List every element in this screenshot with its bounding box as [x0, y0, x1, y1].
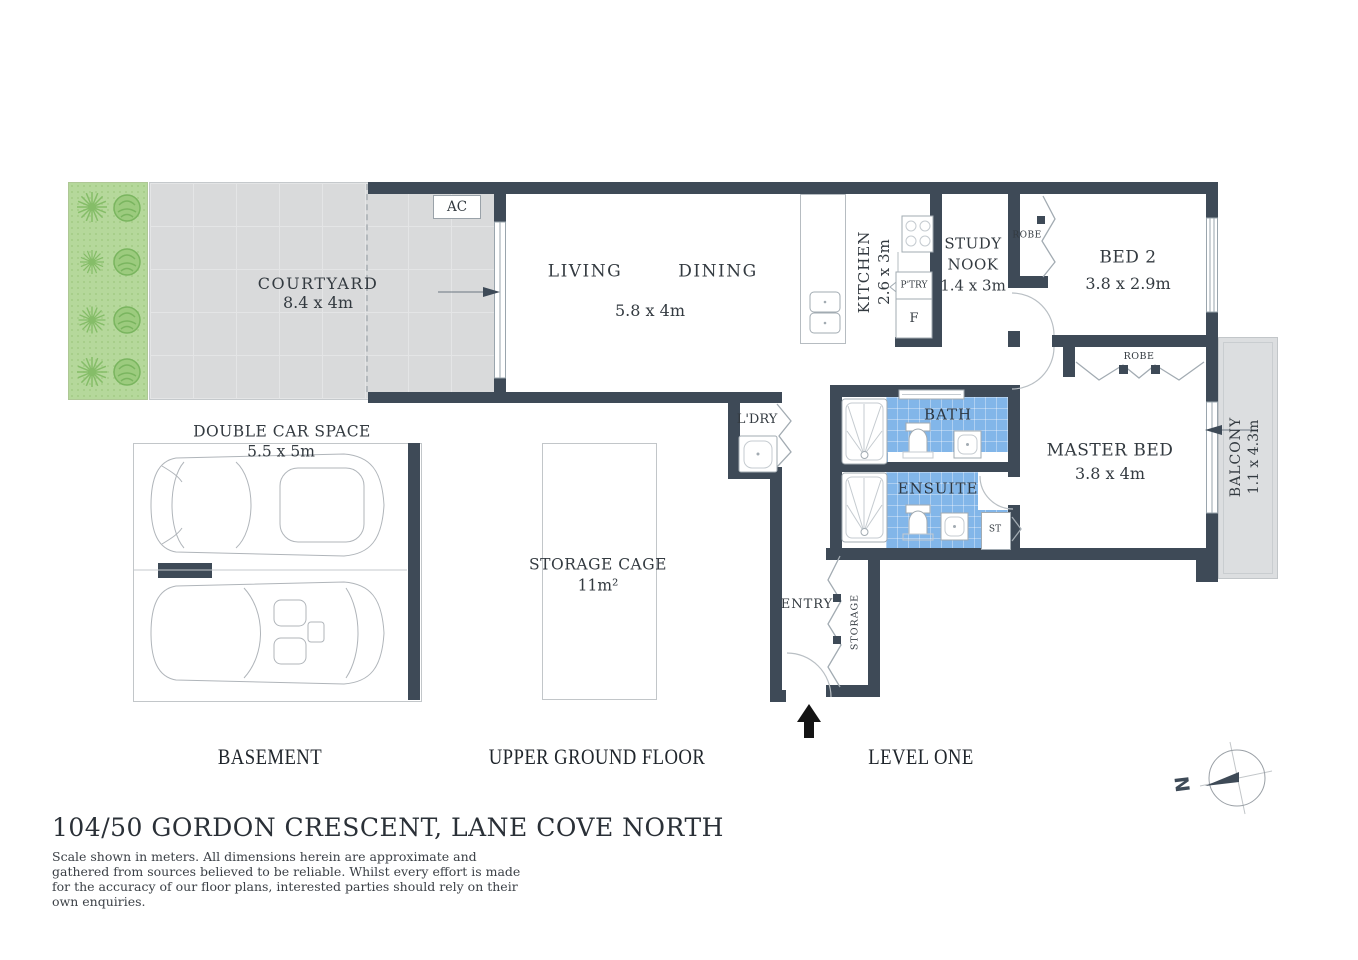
- wall-bed2-bottom: [1052, 335, 1218, 347]
- wall-bed2-right-top: [1206, 182, 1218, 220]
- wall-master-left-upper: [1008, 385, 1020, 477]
- courtyard-label: COURTYARD: [258, 274, 379, 294]
- pantry-label: P'TRY: [901, 280, 928, 291]
- bath-label: BATH: [924, 406, 972, 425]
- door-arc-master: [1012, 347, 1054, 389]
- master-bed-dims: 3.8 x 4m: [1075, 464, 1145, 484]
- robe-master-stub-2: [1151, 365, 1160, 374]
- bath-vanity-counter: [888, 452, 1008, 462]
- balcony-label: BALCONY: [1228, 417, 1244, 497]
- wall-bath-left: [830, 385, 842, 560]
- compass-icon: [1200, 742, 1272, 814]
- floor-label-upper-ground: UPPER GROUND FLOOR: [489, 744, 706, 770]
- page-title: 104/50 GORDON CRESCENT, LANE COVE NORTH: [52, 813, 724, 842]
- wall-storage-right: [868, 548, 880, 697]
- wall-kitchen-right: [930, 194, 942, 347]
- compass-needle: [1205, 772, 1239, 786]
- st-closet-label: ST: [989, 524, 1001, 535]
- wall-basement-divider-block: [158, 563, 212, 578]
- wall-robe-master-stub: [1063, 347, 1075, 377]
- balcony-dims: 1.1 x 4.3m: [1246, 417, 1262, 497]
- wall-entry-left: [770, 479, 782, 702]
- wall-living-left-top: [494, 194, 506, 224]
- courtyard-garden-strip: [68, 182, 148, 400]
- wall-laundry-bottom: [728, 467, 782, 479]
- disclaimer-text: Scale shown in meters. All dimensions he…: [52, 849, 530, 909]
- bifold-door-robe-bed2: [1042, 196, 1055, 277]
- ensuite-label: ENSUITE: [898, 480, 979, 499]
- courtyard-dims: 8.4 x 4m: [283, 293, 353, 313]
- kitchen-island-bench: [800, 194, 846, 344]
- robe-bed2-door-stub: [1037, 216, 1045, 224]
- kitchen-label-block: KITCHEN 2.6 x 3m: [855, 231, 893, 314]
- window-bed2-right: [1207, 218, 1218, 312]
- balcony-label-block: BALCONY 1.1 x 4.3m: [1228, 417, 1262, 497]
- storage-door-stub-2: [833, 636, 841, 644]
- wall-bath-ensuite-divider: [840, 462, 1012, 472]
- storage-door-stub-1: [833, 594, 841, 602]
- bifold-door-storage: [828, 556, 841, 687]
- master-bed-label: MASTER BED: [1047, 440, 1174, 461]
- bifold-door-robe-master: [1076, 362, 1204, 380]
- study-nook-dims: 1.4 x 3m: [940, 277, 1006, 296]
- wall-robe-bed2-bottom: [1008, 276, 1048, 288]
- study-nook-label-1: STUDY: [944, 235, 1001, 254]
- storage-label: STORAGE: [850, 594, 861, 650]
- wall-kitchen-bottom: [895, 337, 942, 347]
- bifold-door-laundry: [777, 404, 791, 467]
- entry-arrow-stem: [804, 721, 814, 738]
- ac-unit-label: AC: [433, 195, 481, 219]
- study-nook-label-2: NOOK: [948, 256, 999, 275]
- compass-north-label: N: [1171, 775, 1197, 794]
- wall-entry-bottom-left: [770, 690, 786, 702]
- storage-cage-dims: 11m²: [578, 576, 619, 595]
- wall-laundry-left: [728, 392, 740, 479]
- floor-label-basement: BASEMENT: [218, 744, 322, 770]
- wall-top-main: [368, 182, 1218, 194]
- robe-master-label: ROBE: [1124, 351, 1155, 363]
- storage-cage-label: STORAGE CAGE: [529, 555, 667, 574]
- car-space-dims: 5.5 x 5m: [247, 442, 315, 461]
- wall-bed2-bottom-cap: [1008, 331, 1020, 347]
- wall-master-right-bottom: [1206, 513, 1218, 550]
- ensuite-shower-icon: [842, 473, 887, 542]
- living-dining-dims: 5.8 x 4m: [615, 301, 685, 321]
- kitchen-label: KITCHEN: [855, 231, 873, 314]
- car-space-label: DOUBLE CAR SPACE: [193, 422, 371, 441]
- robe-bed2-label: ROBE: [1012, 230, 1041, 241]
- entry-arrow-head: [797, 704, 821, 722]
- living-label: LIVING: [548, 261, 622, 282]
- stove-icon: [902, 216, 933, 252]
- bath-shower-icon: [842, 399, 887, 464]
- door-arc-entry: [787, 653, 831, 697]
- laundry-label: L'DRY: [737, 412, 778, 428]
- robe-master-stub-1: [1119, 365, 1128, 374]
- door-arc-bed2: [1012, 293, 1054, 335]
- wall-living-bottom: [368, 392, 782, 403]
- ensuite-door-swing-area: [978, 470, 1010, 510]
- wall-bed2-right-bottom: [1206, 310, 1218, 347]
- kitchen-dims: 2.6 x 3m: [875, 231, 893, 314]
- dining-label: DINING: [678, 261, 757, 282]
- bed2-label: BED 2: [1099, 247, 1156, 268]
- floorplan-canvas: AC COURTYARD 8.4 x 4m LIVING DINING 5.8 …: [0, 0, 1358, 960]
- fridge-label: F: [909, 311, 918, 327]
- wall-bath-top: [830, 385, 1012, 397]
- floor-label-level-one: LEVEL ONE: [868, 744, 973, 770]
- wall-master-right-top: [1206, 347, 1218, 402]
- wall-basement-right: [408, 443, 420, 700]
- entry-label: ENTRY: [781, 597, 834, 613]
- bed2-dims: 3.8 x 2.9m: [1085, 274, 1170, 294]
